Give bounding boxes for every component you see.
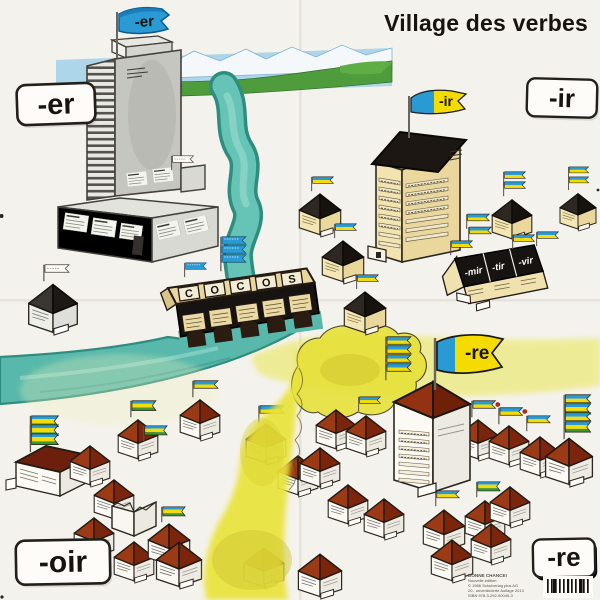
bridge-letter: C: [184, 288, 194, 301]
barcode: [543, 576, 593, 598]
label-ir: -ir: [526, 78, 599, 121]
verb-plaque-panel: [63, 213, 89, 233]
ir-building: [368, 132, 466, 262]
verb-plaque-panel: [152, 167, 174, 183]
verb-plaque-panel: [91, 218, 117, 238]
re-flag-label: -re: [465, 343, 489, 364]
verb-plaque-panel: [126, 171, 148, 187]
re-building: [394, 382, 470, 497]
er-flag-label: -er: [134, 13, 154, 31]
page-title: Village des verbes: [384, 10, 588, 36]
label-oir: -oir: [16, 539, 113, 588]
ir-flag-label: -ir: [439, 93, 454, 109]
label-er: -er: [16, 83, 97, 129]
poster-village-des-verbes: -er C O C O S: [0, 0, 600, 600]
publisher-line: ISBN 978-3-292-00045-3: [468, 593, 513, 598]
label-re: -re: [533, 538, 598, 580]
poster-illustration: -er C O C O S: [0, 0, 600, 600]
label-ir-text: -ir: [549, 83, 576, 114]
label-er-text: -er: [37, 88, 75, 121]
label-re-text: -re: [547, 542, 581, 573]
bridge-letter: C: [236, 280, 246, 293]
label-oir-text: -oir: [39, 546, 88, 580]
